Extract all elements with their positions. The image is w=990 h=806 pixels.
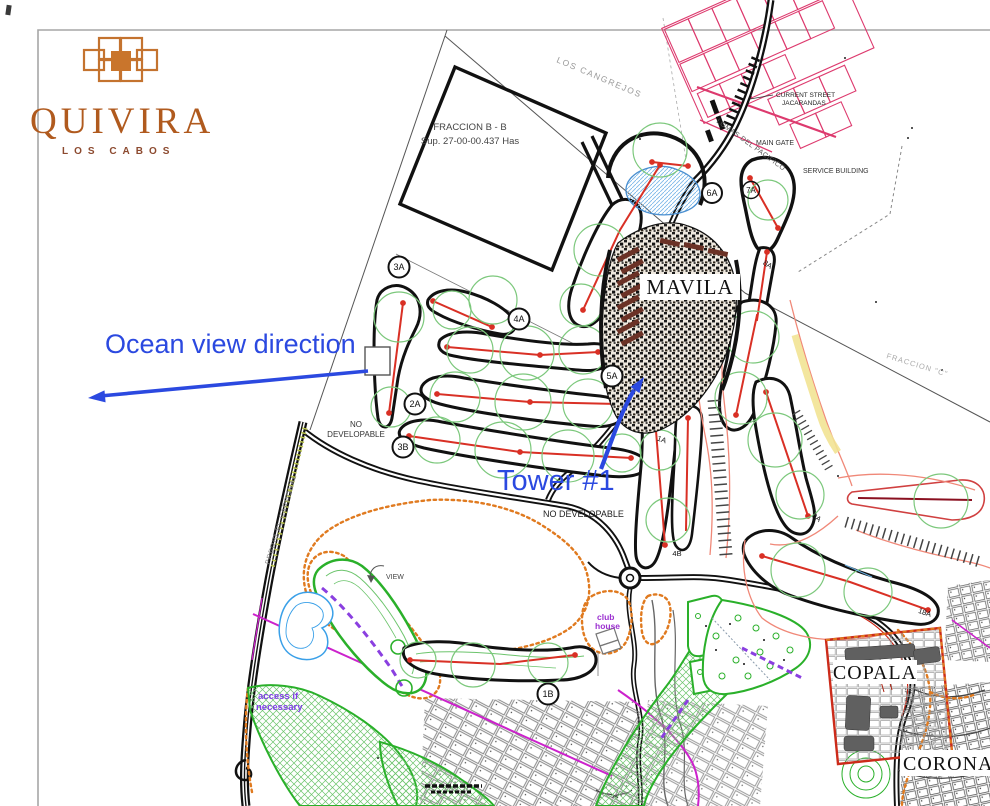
ocean-view-arrow xyxy=(100,371,368,396)
hole-label-4a: 4A xyxy=(509,309,530,330)
svg-text:5A: 5A xyxy=(606,371,617,381)
svg-text:6A: 6A xyxy=(706,188,717,198)
tower-label: Tower #1 xyxy=(497,465,615,497)
club-house-label-2: house xyxy=(595,621,620,631)
service-building-label: SERVICE BUILDING xyxy=(803,168,869,175)
small-parcel-box xyxy=(365,347,390,375)
svg-text:3B: 3B xyxy=(397,442,408,452)
hole-label-3b: 3B xyxy=(393,437,414,458)
fraccion-bb-label-1: FRACCION B - B xyxy=(433,122,506,133)
svg-text:2A: 2A xyxy=(409,399,420,409)
site-plan-page: MAVILA COPALA CORONADO FRACCION B - B Su… xyxy=(0,0,990,806)
park-strip xyxy=(688,596,810,694)
fraccion-bb-parcel xyxy=(400,67,606,270)
jacarandas-lot-grid xyxy=(662,0,899,180)
corner-registration-mark xyxy=(5,5,11,16)
fraccion-bb-label-2: Sup. 27-00-00.437 Has xyxy=(421,136,519,147)
svg-text:3A: 3A xyxy=(393,262,404,272)
roundabout xyxy=(620,568,640,588)
fraccion-c-label: FRACCION "C" xyxy=(885,351,949,378)
current-street-label-2: JACARANDAS xyxy=(782,100,826,107)
los-cangrejos-label: LOS CANGREJOS xyxy=(555,55,643,100)
brand-name: QUIVIRA xyxy=(30,101,214,142)
no-developable-left-1: NO xyxy=(350,420,362,429)
lake xyxy=(626,166,700,214)
mavila-label: MAVILA xyxy=(646,275,733,299)
copala-label: COPALA xyxy=(833,662,917,684)
hole-label-3a: 3A xyxy=(389,257,410,278)
quivira-logo-icon xyxy=(84,38,157,81)
hole-label-6a: 6A xyxy=(702,183,722,203)
view-label: VIEW xyxy=(386,574,404,581)
access-note-1: access if xyxy=(258,691,299,702)
main-gate-label: MAIN GATE xyxy=(756,140,794,147)
ocean-view-arrowhead xyxy=(88,390,106,402)
hole-label-5a: 5A xyxy=(602,366,623,387)
predio-label: PREDIO EL CARDONAL xyxy=(265,474,299,566)
site-plan-map: MAVILA COPALA CORONADO FRACCION B - B Su… xyxy=(0,0,990,806)
copala-area: COPALA xyxy=(826,628,952,764)
coronado-area: CORONADO xyxy=(900,750,990,776)
svg-text:4A: 4A xyxy=(513,314,524,324)
svg-text:1B: 1B xyxy=(542,689,553,699)
no-developable-center: NO DEVELOPABLE xyxy=(543,509,624,519)
hole-label-2a: 2A xyxy=(405,394,426,415)
brand-location: LOS CABOS xyxy=(62,146,175,157)
green-course-lower-left xyxy=(279,560,596,696)
coronado-label: CORONADO xyxy=(903,753,990,775)
access-note-2: necessary xyxy=(256,702,303,713)
no-developable-left-2: DEVELOPABLE xyxy=(327,430,385,439)
quivira-logo: QUIVIRA LOS CABOS xyxy=(30,38,214,157)
svg-text:7A: 7A xyxy=(746,186,756,195)
current-street-label-1: CURRENT STREET xyxy=(776,92,835,99)
hole-label-1b: 1B xyxy=(538,684,559,705)
ocean-view-label: Ocean view direction xyxy=(105,329,356,359)
hole-label-4b: 4B xyxy=(672,549,681,558)
